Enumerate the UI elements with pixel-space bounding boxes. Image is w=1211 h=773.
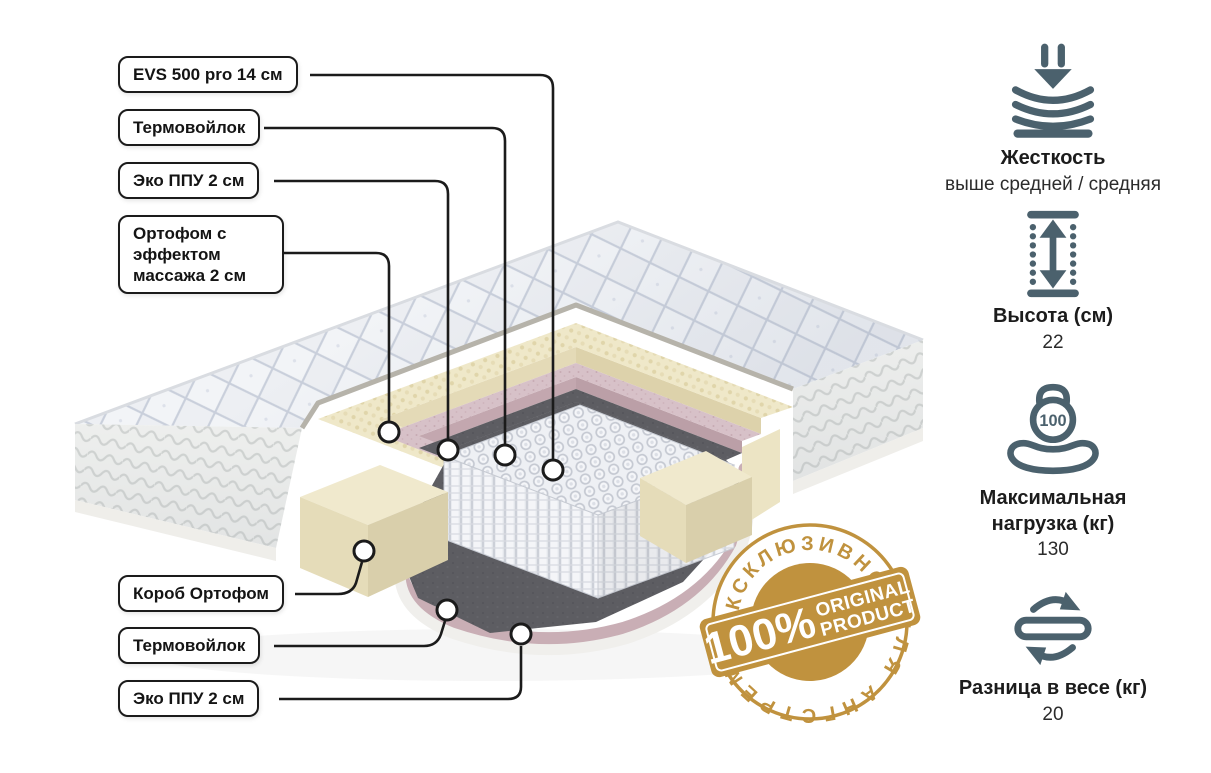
max-load-icon-number: 100 <box>1039 412 1066 430</box>
height-icon <box>1005 208 1101 300</box>
spec-weight-difference: Разница в весе (кг) 20 <box>920 584 1186 726</box>
callout-ortofoam: Ортофом с эффектом массажа 2 см <box>118 215 284 294</box>
spec-title: Высота (см) <box>993 304 1113 330</box>
specs-column: Жесткость выше средней / средняя <box>920 0 1186 773</box>
spec-firmness: Жесткость выше средней / средняя <box>920 42 1186 196</box>
max-load-icon: 100 <box>1001 380 1105 482</box>
spec-value: 130 <box>1037 538 1069 562</box>
callout-eco-ppu-bottom: Эко ППУ 2 см <box>118 680 259 717</box>
spec-value: 22 <box>1042 331 1063 355</box>
left-side-panel <box>75 424 302 561</box>
flip-icon <box>1003 584 1103 672</box>
firmness-icon <box>1001 42 1105 142</box>
callout-evs-500: EVS 500 pro 14 см <box>118 56 298 93</box>
callout-thermofelt-top: Термовойлок <box>118 109 260 146</box>
spec-title: Максимальная нагрузка (кг) <box>941 486 1166 537</box>
spec-max-load: 100 Максимальная нагрузка (кг) 130 <box>920 380 1186 562</box>
callout-eco-ppu-top: Эко ППУ 2 см <box>118 162 259 199</box>
spec-height: Высота (см) 22 <box>920 208 1186 354</box>
product-infographic: ЭКСКЛЮЗИВНО ДЛЯ АНГСТРЕМ 100% ORIGINAL P… <box>0 0 1211 773</box>
spec-value: выше средней / средняя <box>945 173 1161 197</box>
callout-thermofelt-bottom: Термовойлок <box>118 627 260 664</box>
spec-title: Жесткость <box>1001 146 1106 172</box>
spec-title: Разница в весе (кг) <box>959 676 1147 702</box>
spec-value: 20 <box>1042 703 1063 727</box>
callout-foam-box: Короб Ортофом <box>118 575 284 612</box>
